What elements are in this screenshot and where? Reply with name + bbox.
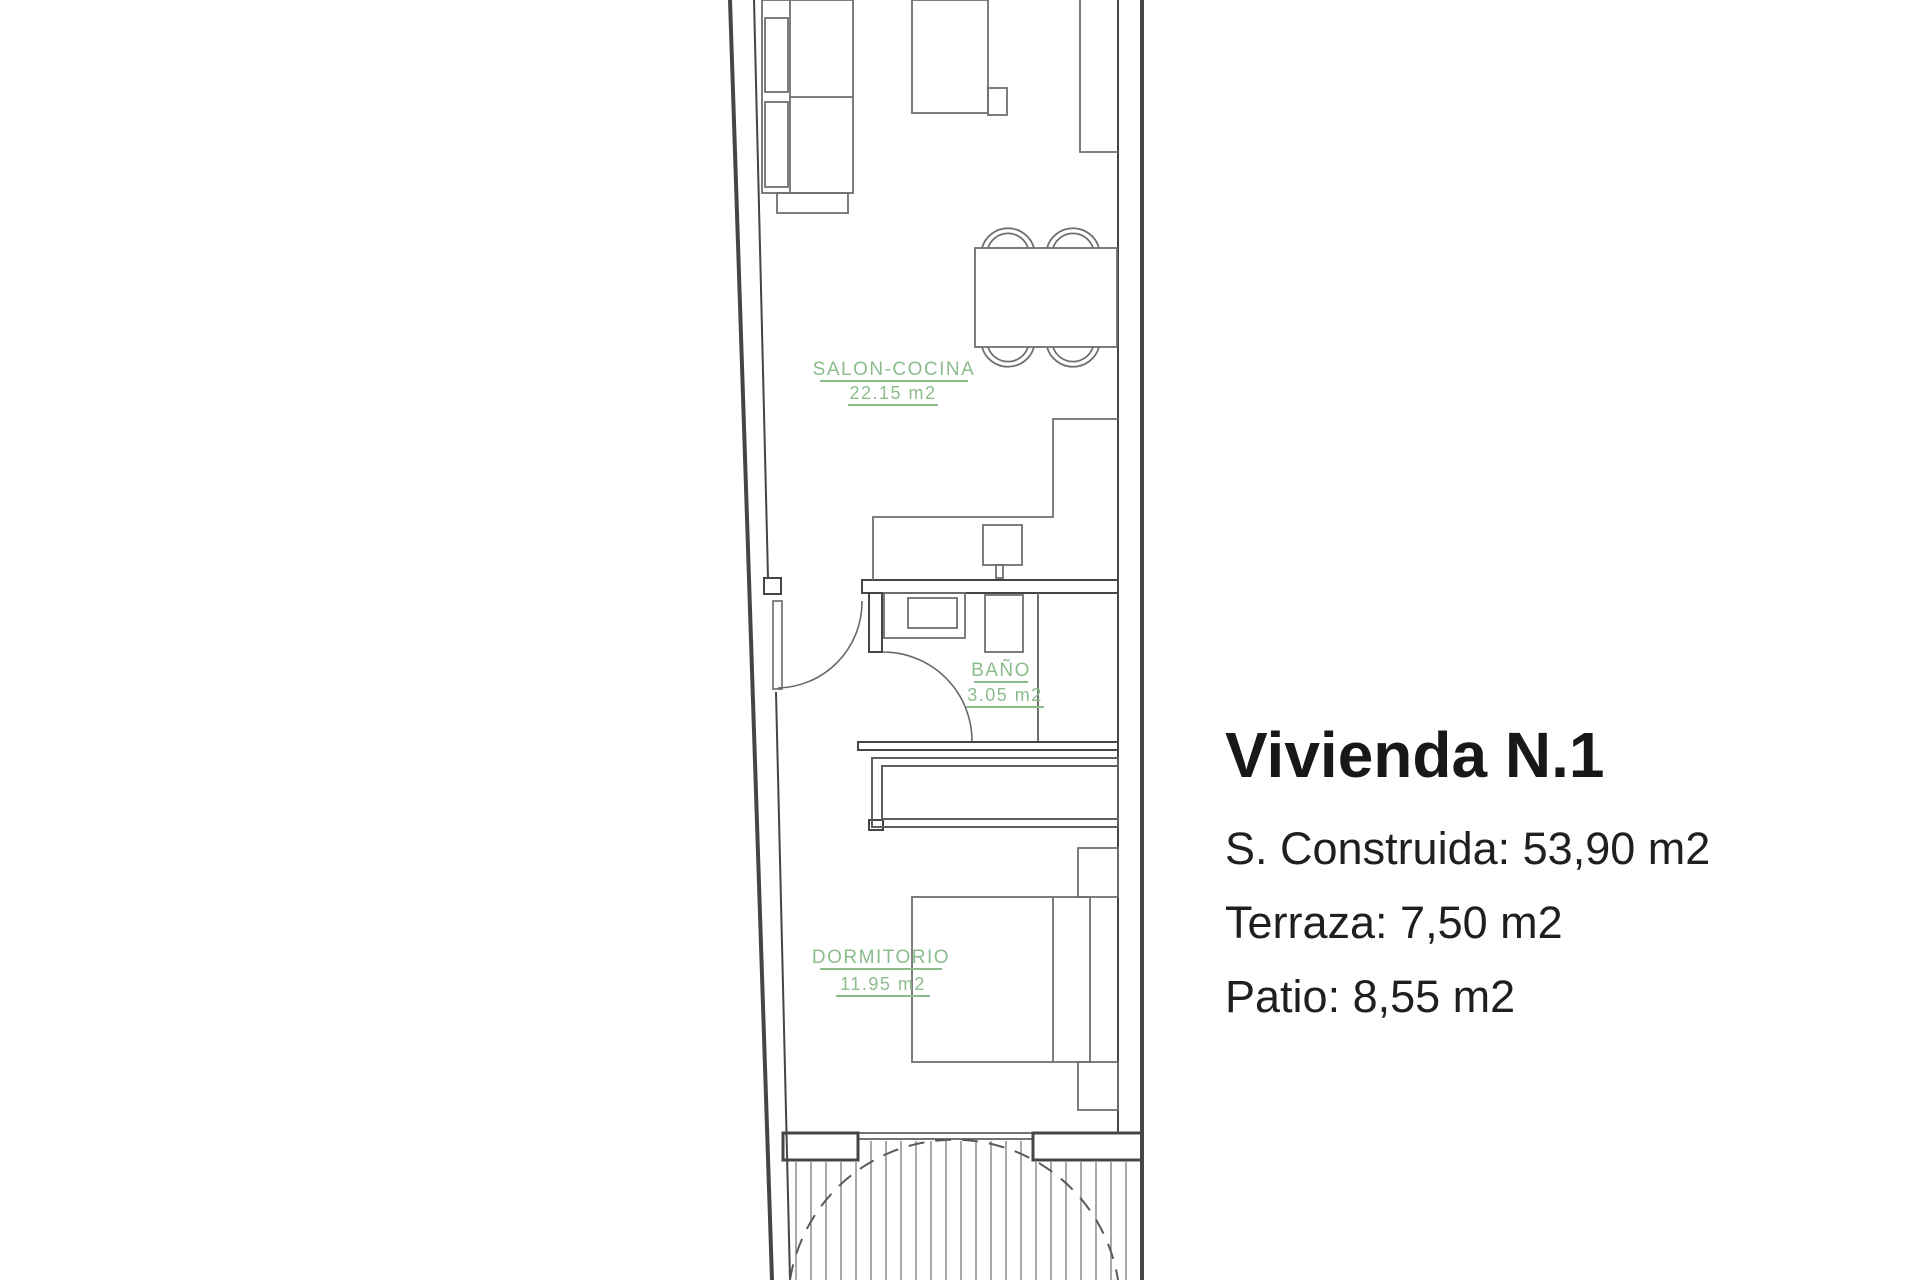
built-area-line: S. Construida: 53,90 m2 bbox=[1225, 826, 1710, 871]
wall-left-inner-upper bbox=[754, 0, 768, 578]
bed bbox=[912, 897, 1090, 1062]
hall-door-swing-arc bbox=[778, 601, 862, 688]
door-jamb-notch bbox=[764, 578, 781, 594]
dwelling-title: Vivienda N.1 bbox=[1225, 718, 1710, 792]
terrace-sliding-door bbox=[858, 1133, 1033, 1139]
nightstand bbox=[1078, 1062, 1118, 1110]
terrace-area-line: Terraza: 7,50 m2 bbox=[1225, 900, 1710, 945]
dining-table bbox=[975, 228, 1117, 366]
info-panel: Vivienda N.1 S. Construida: 53,90 m2 Ter… bbox=[1225, 718, 1710, 1048]
bedroom-furniture bbox=[912, 848, 1118, 1110]
kitchen-counter-l bbox=[873, 419, 1118, 580]
toilet-icon bbox=[985, 595, 1023, 652]
terrace-hatch-left bbox=[788, 1162, 858, 1280]
floor-plan-page: SALON-COCINA 22.15 m2 BAÑO 3.05 m2 DORMI… bbox=[0, 0, 1920, 1280]
dormitorio-area: 11.95 m2 bbox=[840, 974, 926, 994]
room-labels: SALON-COCINA 22.15 m2 BAÑO 3.05 m2 DORMI… bbox=[812, 359, 1044, 996]
patio-area-line: Patio: 8,55 m2 bbox=[1225, 974, 1710, 1019]
wall-bottom-right-stub bbox=[1033, 1133, 1142, 1160]
wall-hall-bedroom bbox=[858, 742, 1118, 750]
bath-door-swing-arc bbox=[883, 652, 972, 741]
salon-cocina-label: SALON-COCINA bbox=[813, 359, 976, 380]
salon-cocina-area: 22.15 m2 bbox=[849, 383, 936, 403]
nightstand bbox=[1078, 848, 1118, 897]
doors bbox=[773, 601, 972, 741]
wall-left-inner-lower bbox=[776, 692, 790, 1280]
wall-bath-jamb bbox=[869, 593, 882, 652]
salon-furniture bbox=[762, 0, 1118, 580]
wardrobe bbox=[872, 758, 1118, 827]
hall-door-leaf bbox=[773, 601, 782, 689]
floor-plan-drawing: SALON-COCINA 22.15 m2 BAÑO 3.05 m2 DORMI… bbox=[0, 0, 1920, 1280]
bano-label: BAÑO bbox=[971, 659, 1031, 681]
wall-bottom-left-stub bbox=[783, 1133, 858, 1160]
sofa bbox=[762, 0, 853, 213]
kitchen-sink-icon bbox=[983, 525, 1022, 578]
tv-unit bbox=[912, 0, 1007, 115]
washbasin-icon bbox=[884, 593, 965, 638]
wall-left-outer bbox=[730, 0, 772, 1280]
dormitorio-label: DORMITORIO bbox=[812, 947, 950, 968]
terrace-hatch-middle bbox=[858, 1141, 1033, 1280]
walls bbox=[730, 0, 1142, 1280]
bano-area: 3.05 m2 bbox=[967, 685, 1043, 705]
kitchen-counter-icon bbox=[1080, 0, 1118, 152]
terrace-hatch-right bbox=[1033, 1162, 1140, 1280]
wall-salon-bath bbox=[862, 580, 1118, 593]
